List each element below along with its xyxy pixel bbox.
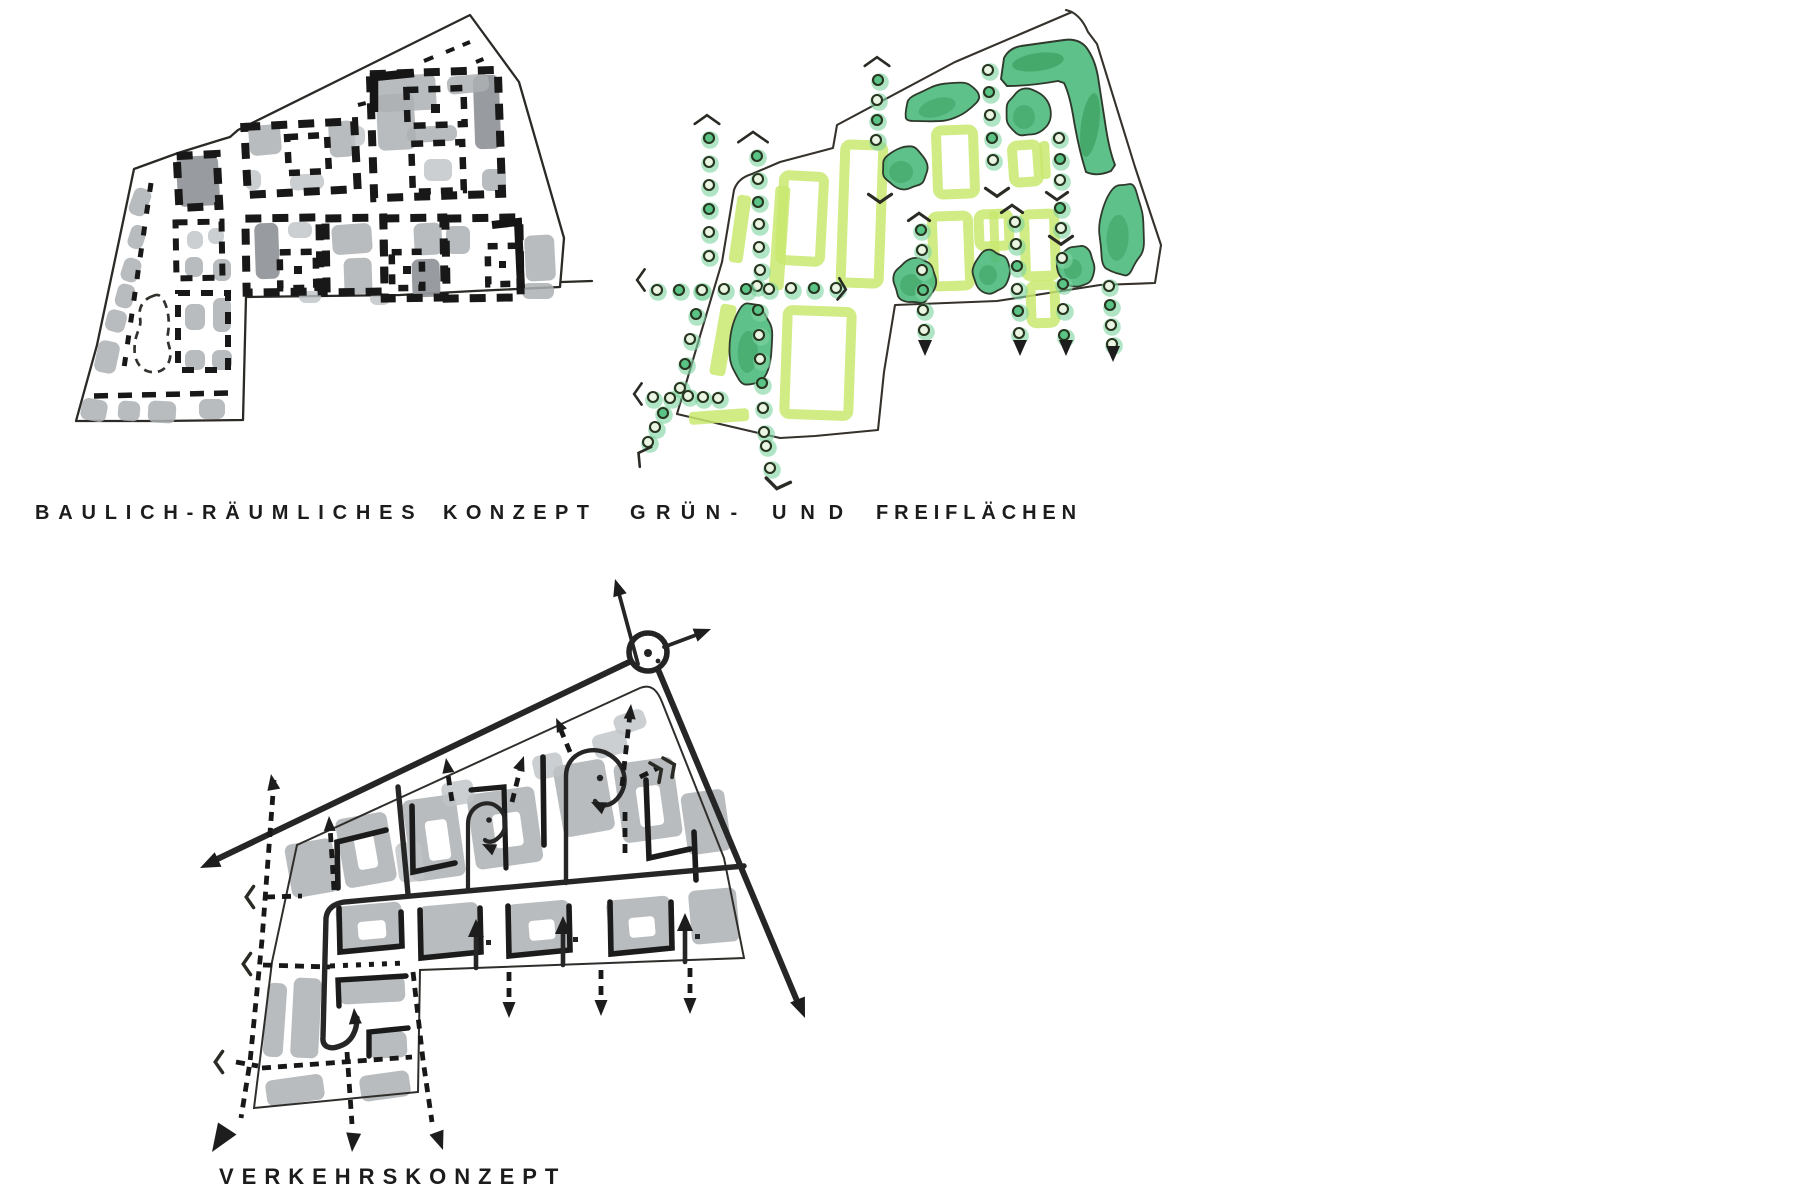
svg-text:KONZEPT: KONZEPT — [443, 502, 597, 524]
svg-text:BAULICH-RÄUMLICHES: BAULICH-RÄUMLICHES — [35, 501, 423, 524]
svg-text:UND: UND — [772, 502, 857, 524]
svg-text:VERKEHRSKONZEPT: VERKEHRSKONZEPT — [219, 1164, 566, 1189]
svg-text:FREIFLÄCHEN: FREIFLÄCHEN — [876, 501, 1082, 524]
svg-text:GRÜN-: GRÜN- — [630, 501, 748, 524]
